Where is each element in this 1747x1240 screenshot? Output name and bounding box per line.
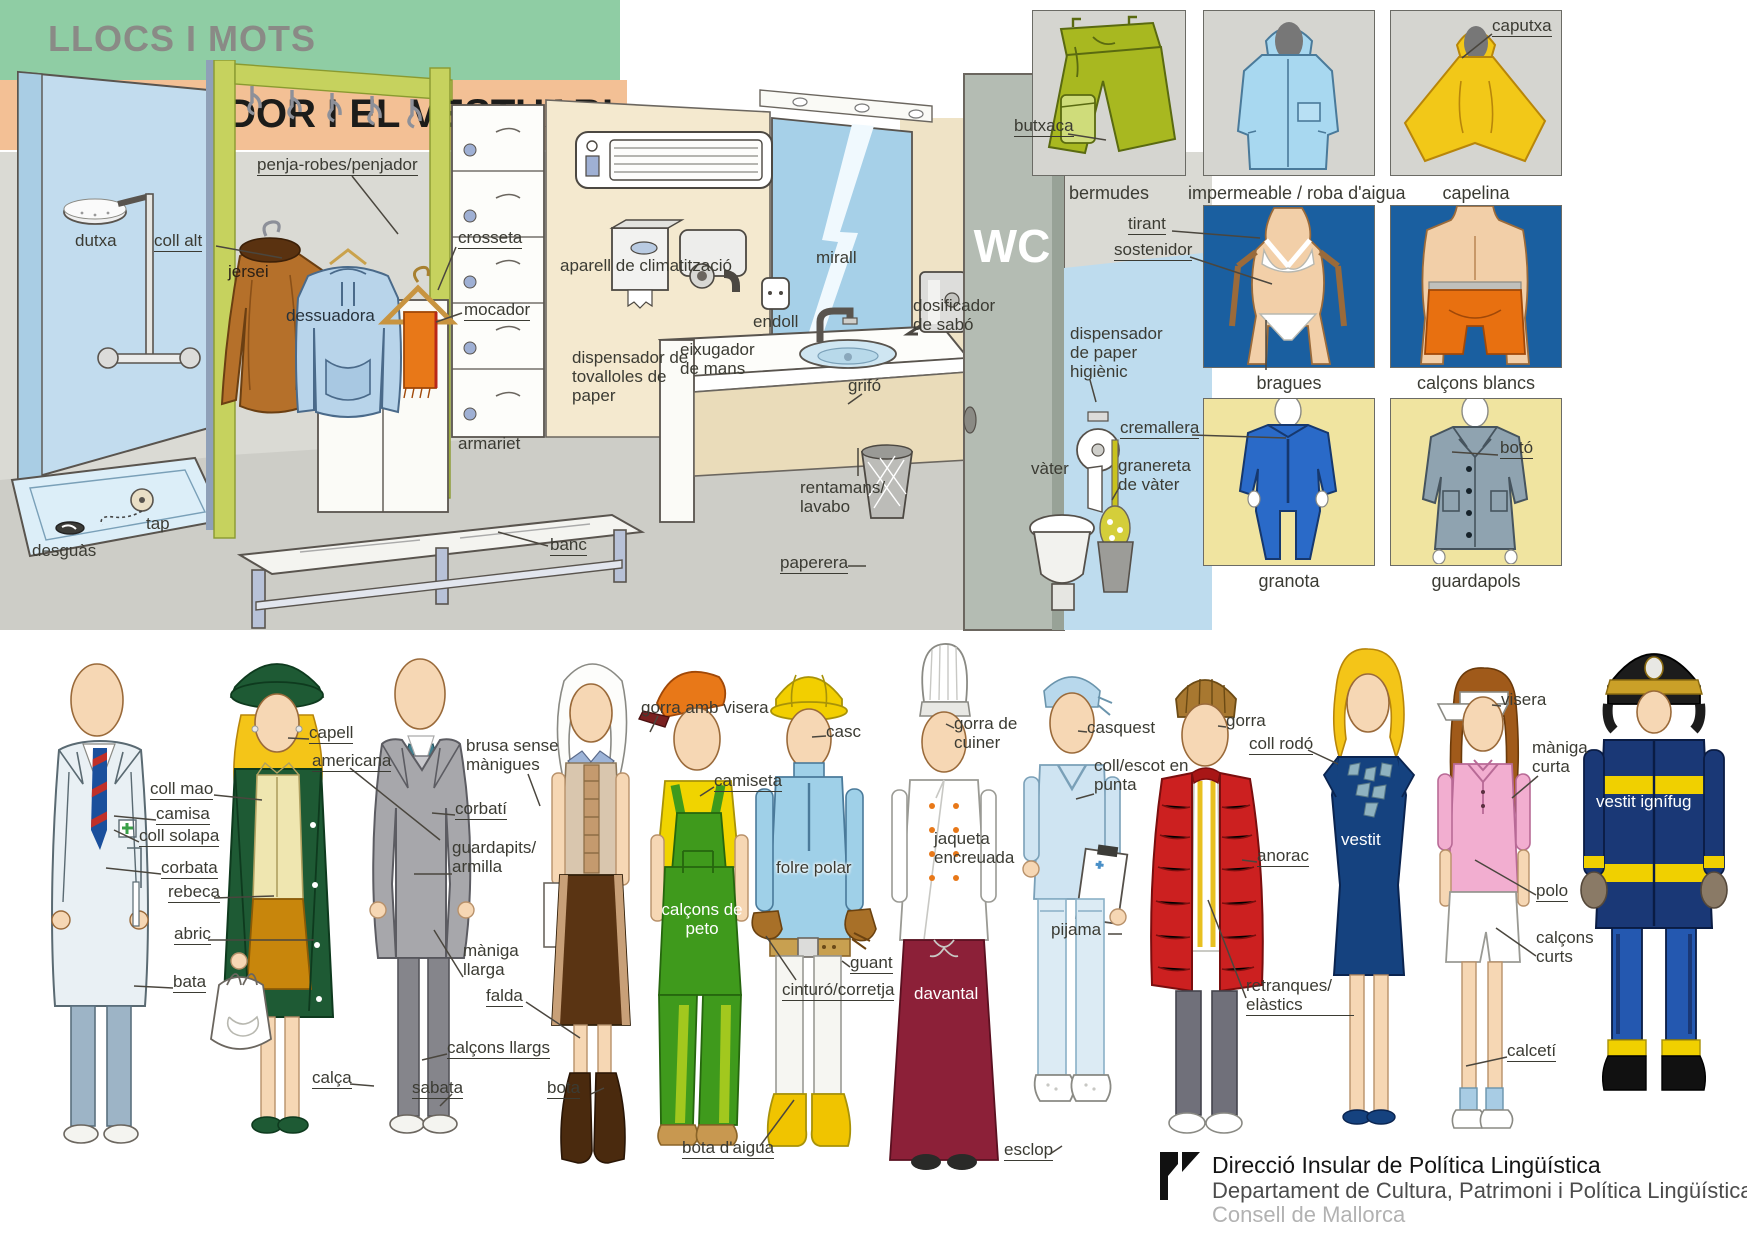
panel-calcons-blancs xyxy=(1390,205,1562,368)
label-grifo: grifó xyxy=(848,376,881,395)
person-vestit xyxy=(1302,645,1437,1180)
label-sostenidor: sostenidor xyxy=(1114,240,1192,261)
label-guardapits: guardapits/ armilla xyxy=(452,838,564,876)
caption-bermudes: bermudes xyxy=(1032,183,1186,203)
label-retranques: retranques/ elàstics xyxy=(1246,976,1354,1016)
panel-granota xyxy=(1203,398,1375,566)
label-guant: guant xyxy=(850,953,893,974)
person-folre xyxy=(748,655,888,1180)
label-coll-mao: coll mao xyxy=(150,779,213,800)
label-crosseta: crosseta xyxy=(458,228,522,249)
label-americana: americana xyxy=(312,751,391,772)
label-tap: tap xyxy=(146,514,170,533)
person-bomber xyxy=(1578,628,1730,1128)
label-vestit: vestit xyxy=(1341,830,1381,849)
kicker-text: LLOCS I MOTS xyxy=(48,18,316,60)
label-desguas: desguàs xyxy=(32,541,96,560)
label-mocador: mocador xyxy=(464,300,530,321)
label-dutxa: dutxa xyxy=(75,231,117,250)
person-polo xyxy=(1420,660,1550,1170)
footer-dept: Departament de Cultura, Patrimoni i Polí… xyxy=(1212,1178,1747,1204)
footer-consell: Consell de Mallorca xyxy=(1212,1202,1405,1228)
label-coll-alt: coll alt xyxy=(154,231,202,252)
label-dispensador-paper: dispensador de paper higiènic xyxy=(1070,324,1170,381)
label-camiseta: camiseta xyxy=(714,771,782,792)
label-brusa: brusa sense mànigues xyxy=(466,736,584,774)
label-caputxa: caputxa xyxy=(1492,16,1552,37)
label-butxaca: butxaca xyxy=(1014,116,1074,137)
caption-calcons-blancs: calçons blancs xyxy=(1390,373,1562,393)
label-endoll: endoll xyxy=(753,312,798,331)
label-coll-rodo: coll rodó xyxy=(1249,734,1313,755)
label-coll-escot: coll/escot en punta xyxy=(1094,756,1190,794)
label-capell: capell xyxy=(309,723,353,744)
label-cinturo: cinturó/corretja xyxy=(782,980,894,1001)
label-gorra-cuiner: gorra de cuiner xyxy=(954,714,1034,752)
label-esclop: esclop xyxy=(1004,1140,1053,1161)
label-jersei: jersei xyxy=(228,262,269,281)
caption-bragues: bragues xyxy=(1203,373,1375,393)
label-casc: casc xyxy=(826,722,861,741)
person-bata xyxy=(25,652,175,1177)
label-dessuadora: dessuadora xyxy=(286,306,375,325)
label-visera: visera xyxy=(1501,690,1546,709)
label-eixugador: eixugador de mans xyxy=(680,340,778,378)
granota-art xyxy=(1204,399,1373,564)
label-davantal: davantal xyxy=(914,984,978,1003)
label-bota: bota xyxy=(547,1078,580,1099)
label-polo: polo xyxy=(1536,881,1568,902)
label-rebeca: rebeca xyxy=(168,882,220,903)
label-calceti: calcetí xyxy=(1507,1041,1556,1062)
bragues-art xyxy=(1204,206,1373,366)
panel-bragues xyxy=(1203,205,1375,368)
label-coll-solapa: coll solapa xyxy=(139,826,219,847)
label-armariet: armariet xyxy=(458,434,520,453)
label-pijama: pijama xyxy=(1051,920,1101,939)
label-folre-polar: folre polar xyxy=(776,858,852,877)
caption-capelina: capelina xyxy=(1390,183,1562,203)
label-aparell: aparell de climatització xyxy=(560,256,732,275)
wc-sign: WC xyxy=(974,220,1051,272)
label-calcons-peto: calçons de peto xyxy=(660,900,744,938)
label-maniga-llarga: màniga llarga xyxy=(463,941,535,979)
panel-guardapols xyxy=(1390,398,1562,566)
label-vestit-ignifug: vestit ignífug xyxy=(1596,792,1691,811)
label-gorra: gorra xyxy=(1226,711,1266,730)
label-penja-robes: penja-robes/penjador xyxy=(257,155,418,176)
label-bota-aigua: bota d'aigua xyxy=(682,1138,774,1159)
label-granereta: granereta de vàter xyxy=(1118,456,1206,494)
label-mirall: mirall xyxy=(816,248,857,267)
label-corbata: corbata xyxy=(161,858,218,879)
label-paperera: paperera xyxy=(780,553,848,574)
calcons-blancs-art xyxy=(1391,206,1560,366)
label-calcons-llargs: calçons llargs xyxy=(447,1038,550,1059)
bermudes-art xyxy=(1033,11,1184,174)
label-casquest: casquest xyxy=(1087,718,1155,737)
label-bata: bata xyxy=(173,972,206,993)
poster: LLOCS I MOTS EL VESTIDOR I EL VESTUARI xyxy=(0,0,1747,1240)
label-anorac: anorac xyxy=(1257,846,1309,867)
label-falda: falda xyxy=(486,986,523,1007)
label-tirant: tirant xyxy=(1128,214,1166,235)
label-abric: abric xyxy=(174,924,211,945)
label-gorra-visera: gorra amb visera xyxy=(641,698,769,717)
label-cremallera: cremallera xyxy=(1120,418,1199,439)
impermeable-art xyxy=(1204,11,1373,174)
label-calcons-curts: calçons curts xyxy=(1536,928,1614,966)
label-camisa: camisa xyxy=(156,804,210,825)
label-jaqueta: jaqueta encreuada xyxy=(934,829,1034,867)
label-boto: botó xyxy=(1500,438,1533,459)
label-maniga-curta: màniga curta xyxy=(1532,738,1604,776)
label-calca: calça xyxy=(312,1068,352,1089)
consell-logo-icon xyxy=(1158,1152,1204,1202)
label-dosificador: dosificador de sabó xyxy=(913,296,1018,334)
caption-granota: granota xyxy=(1203,571,1375,591)
label-rentamans: rentamans/ lavabo xyxy=(800,478,905,516)
guardapols-art xyxy=(1391,399,1560,564)
label-sabata: sabata xyxy=(412,1078,463,1099)
label-banc: banc xyxy=(550,535,587,556)
label-corbati: corbatí xyxy=(455,799,507,820)
panel-bermudes xyxy=(1032,10,1186,176)
caption-impermeable: impermeable / roba d'aigua xyxy=(1188,183,1390,203)
panel-impermeable xyxy=(1203,10,1375,176)
caption-guardapols: guardapols xyxy=(1390,571,1562,591)
person-anorac xyxy=(1138,655,1278,1170)
footer-org: Direcció Insular de Política Lingüística xyxy=(1212,1152,1601,1179)
label-vater: vàter xyxy=(1031,459,1069,478)
